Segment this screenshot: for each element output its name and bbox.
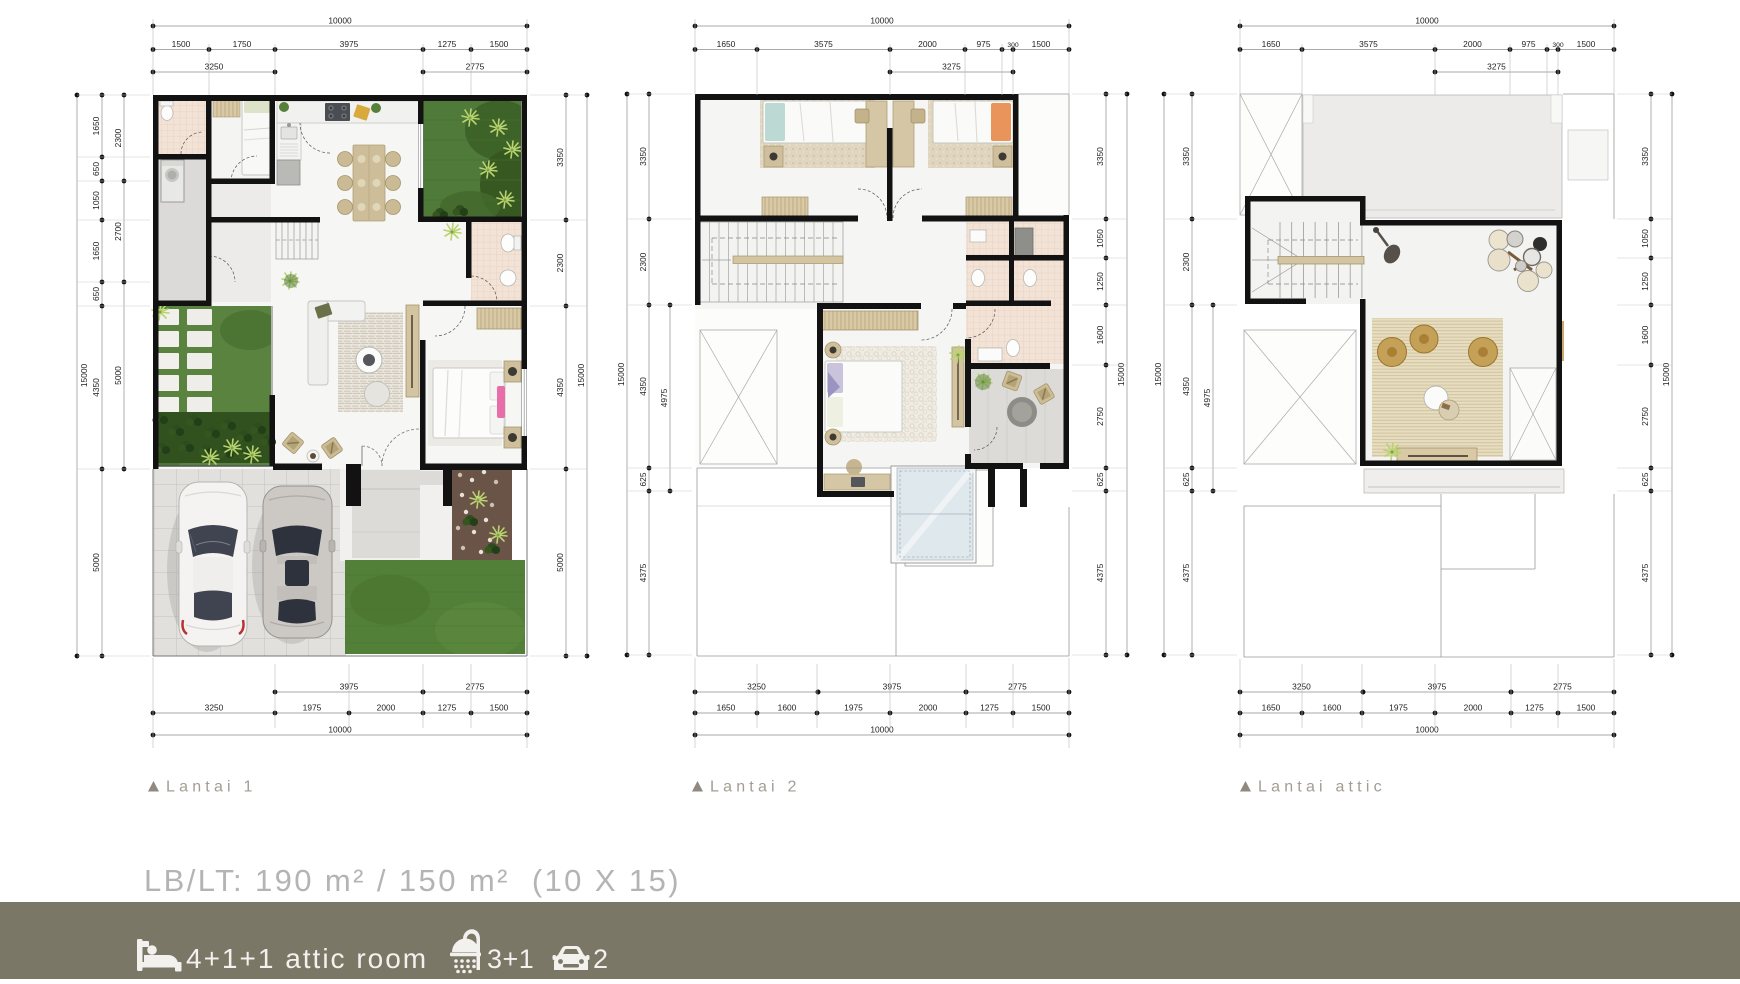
svg-text:3250: 3250 <box>205 62 224 72</box>
svg-text:1500: 1500 <box>172 39 191 49</box>
svg-text:3275: 3275 <box>1487 62 1506 72</box>
svg-text:1650: 1650 <box>91 116 101 135</box>
svg-text:625: 625 <box>1095 472 1105 486</box>
svg-text:1975: 1975 <box>1389 703 1408 713</box>
svg-text:1650: 1650 <box>717 39 736 49</box>
svg-text:4975: 4975 <box>659 388 669 407</box>
svg-text:3+1: 3+1 <box>487 944 534 974</box>
svg-text:3250: 3250 <box>747 682 766 692</box>
svg-text:2775: 2775 <box>1008 682 1027 692</box>
svg-text:1500: 1500 <box>1577 703 1596 713</box>
svg-text:975: 975 <box>1522 39 1536 49</box>
svg-text:3975: 3975 <box>1428 682 1447 692</box>
svg-text:650: 650 <box>91 162 101 176</box>
svg-text:1500: 1500 <box>1577 39 1596 49</box>
svg-text:10000: 10000 <box>870 725 894 735</box>
svg-text:2300: 2300 <box>1181 252 1191 271</box>
svg-text:3275: 3275 <box>942 62 961 72</box>
svg-text:15000: 15000 <box>576 364 586 388</box>
svg-text:1600: 1600 <box>1095 325 1105 344</box>
svg-text:1650: 1650 <box>1262 39 1281 49</box>
svg-text:300: 300 <box>1007 42 1019 49</box>
svg-text:1500: 1500 <box>1032 703 1051 713</box>
svg-text:3350: 3350 <box>1181 147 1191 166</box>
svg-text:4375: 4375 <box>638 563 648 582</box>
svg-text:Lantai 2: Lantai 2 <box>710 779 801 796</box>
svg-text:3975: 3975 <box>340 39 359 49</box>
svg-text:4375: 4375 <box>1181 563 1191 582</box>
svg-text:Lantai 1: Lantai 1 <box>166 779 257 796</box>
svg-text:1275: 1275 <box>1525 703 1544 713</box>
svg-text:625: 625 <box>1640 472 1650 486</box>
svg-text:2300: 2300 <box>638 252 648 271</box>
svg-text:650: 650 <box>91 287 101 301</box>
svg-text:3350: 3350 <box>1640 147 1650 166</box>
svg-text:10000: 10000 <box>328 16 352 26</box>
svg-text:15000: 15000 <box>1661 363 1671 387</box>
svg-text:4+1+1 attic room: 4+1+1 attic room <box>186 943 428 974</box>
svg-text:4350: 4350 <box>91 378 101 397</box>
svg-text:1500: 1500 <box>490 703 509 713</box>
svg-text:4350: 4350 <box>555 378 565 397</box>
svg-text:3350: 3350 <box>555 148 565 167</box>
svg-text:2775: 2775 <box>466 682 485 692</box>
svg-text:975: 975 <box>977 39 991 49</box>
svg-text:LB/LT: 190 m² / 150 m² (10 X: LB/LT: 190 m² / 150 m² (10 X 15) <box>144 863 681 898</box>
svg-text:1650: 1650 <box>91 241 101 260</box>
svg-text:2000: 2000 <box>1464 703 1483 713</box>
svg-text:4350: 4350 <box>638 377 648 396</box>
svg-text:10000: 10000 <box>1415 16 1439 26</box>
svg-text:10000: 10000 <box>1415 725 1439 735</box>
svg-text:4350: 4350 <box>1181 377 1191 396</box>
svg-text:1275: 1275 <box>980 703 999 713</box>
svg-text:1750: 1750 <box>233 39 252 49</box>
svg-text:1500: 1500 <box>1032 39 1051 49</box>
svg-text:1975: 1975 <box>303 703 322 713</box>
svg-text:15000: 15000 <box>616 363 626 387</box>
svg-text:2750: 2750 <box>1095 407 1105 426</box>
svg-text:1050: 1050 <box>91 191 101 210</box>
svg-text:1250: 1250 <box>1640 272 1650 291</box>
svg-text:1600: 1600 <box>1640 325 1650 344</box>
svg-text:2000: 2000 <box>377 703 396 713</box>
svg-text:2775: 2775 <box>1553 682 1572 692</box>
svg-text:1050: 1050 <box>1095 229 1105 248</box>
svg-text:10000: 10000 <box>328 725 352 735</box>
svg-text:5000: 5000 <box>91 553 101 572</box>
svg-text:3575: 3575 <box>814 39 833 49</box>
svg-text:1050: 1050 <box>1640 229 1650 248</box>
svg-text:2000: 2000 <box>1463 39 1482 49</box>
svg-text:3575: 3575 <box>1359 39 1378 49</box>
svg-text:2: 2 <box>593 944 609 974</box>
svg-text:4975: 4975 <box>1202 388 1212 407</box>
svg-text:4375: 4375 <box>1640 563 1650 582</box>
svg-text:2000: 2000 <box>918 39 937 49</box>
svg-text:15000: 15000 <box>79 364 89 388</box>
svg-text:1275: 1275 <box>438 703 457 713</box>
svg-text:625: 625 <box>638 472 648 486</box>
svg-text:Lantai attic: Lantai attic <box>1258 779 1386 796</box>
svg-text:15000: 15000 <box>1116 363 1126 387</box>
svg-text:1500: 1500 <box>490 39 509 49</box>
svg-text:1650: 1650 <box>717 703 736 713</box>
svg-text:1600: 1600 <box>778 703 797 713</box>
svg-text:625: 625 <box>1181 472 1191 486</box>
svg-text:15000: 15000 <box>1153 363 1163 387</box>
svg-text:3975: 3975 <box>883 682 902 692</box>
svg-text:2700: 2700 <box>113 222 123 241</box>
svg-text:1275: 1275 <box>438 39 457 49</box>
svg-text:3250: 3250 <box>1292 682 1311 692</box>
svg-text:2750: 2750 <box>1640 407 1650 426</box>
svg-text:5000: 5000 <box>555 553 565 572</box>
svg-text:3250: 3250 <box>205 703 224 713</box>
svg-text:2300: 2300 <box>555 253 565 272</box>
svg-text:10000: 10000 <box>870 16 894 26</box>
svg-text:2775: 2775 <box>466 62 485 72</box>
svg-text:1600: 1600 <box>1323 703 1342 713</box>
svg-text:1650: 1650 <box>1262 703 1281 713</box>
svg-text:5000: 5000 <box>113 366 123 385</box>
svg-text:2300: 2300 <box>113 128 123 147</box>
svg-text:1250: 1250 <box>1095 272 1105 291</box>
svg-text:1975: 1975 <box>844 703 863 713</box>
svg-text:2000: 2000 <box>919 703 938 713</box>
svg-text:3350: 3350 <box>1095 147 1105 166</box>
svg-text:3350: 3350 <box>638 147 648 166</box>
svg-text:4375: 4375 <box>1095 563 1105 582</box>
svg-text:300: 300 <box>1552 42 1564 49</box>
